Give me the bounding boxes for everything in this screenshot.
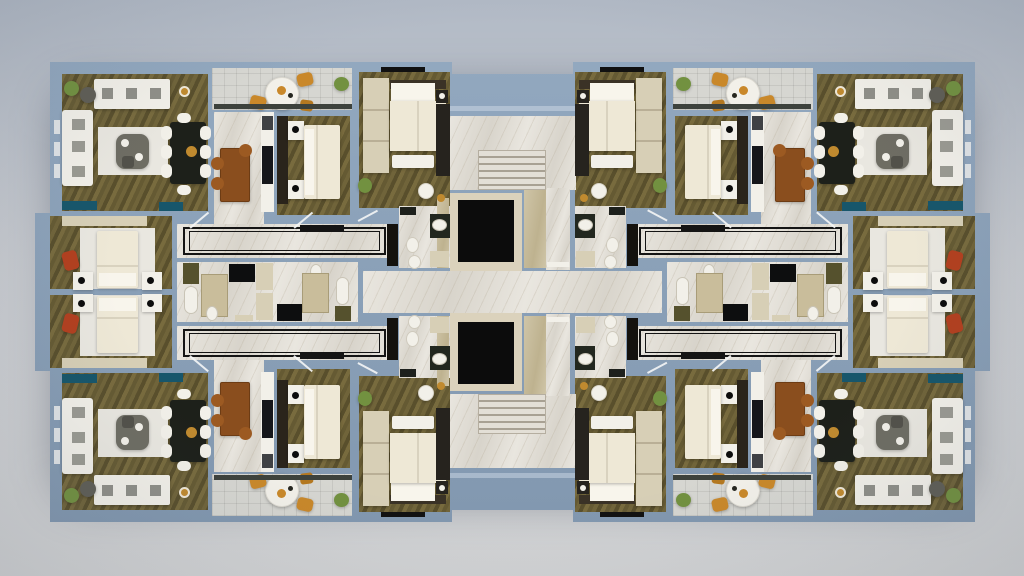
bed-fold xyxy=(707,385,709,459)
hall-wardrobe xyxy=(387,224,398,266)
toilet xyxy=(606,237,619,253)
nightstand-dot xyxy=(580,485,586,491)
window-dash xyxy=(965,120,971,134)
toilet xyxy=(206,306,218,321)
table-item xyxy=(288,93,293,98)
planter xyxy=(62,374,97,383)
nightstand-dot xyxy=(726,126,733,133)
column-item xyxy=(752,454,763,468)
wardrobe-seam xyxy=(363,473,389,475)
closet xyxy=(256,293,273,320)
table-item xyxy=(739,86,748,95)
bed-fold xyxy=(887,265,928,267)
tv-wall xyxy=(277,116,288,204)
dining-centerpiece xyxy=(186,146,197,157)
window-bench xyxy=(878,216,963,226)
kitchen-sink xyxy=(888,88,899,99)
cooktop xyxy=(912,88,923,99)
wardrobe-seam xyxy=(363,109,389,111)
gold-item xyxy=(580,382,588,390)
dining-chair xyxy=(200,406,211,420)
toilet xyxy=(406,237,419,253)
toilet xyxy=(606,331,619,347)
vanity-item xyxy=(400,369,416,377)
breakfast-chair xyxy=(801,394,814,407)
bathtub xyxy=(676,277,689,305)
plant xyxy=(653,391,667,406)
bath-sink xyxy=(578,219,593,231)
plant xyxy=(358,391,372,406)
column-item xyxy=(262,116,273,130)
dining-chair xyxy=(834,185,848,195)
breakfast-chair xyxy=(801,414,814,427)
bath-mat xyxy=(696,273,723,313)
table-item xyxy=(288,486,293,491)
table-item xyxy=(739,489,748,498)
dining-chair xyxy=(177,461,191,471)
coffee-table xyxy=(122,416,134,428)
bed-pillow xyxy=(590,83,634,101)
nightstand-dot xyxy=(871,300,878,307)
wardrobe-seam xyxy=(636,442,662,444)
nightstand-dot xyxy=(439,485,445,491)
tv-wall xyxy=(277,380,288,468)
armchair-dot xyxy=(882,423,890,431)
hall-console xyxy=(300,352,344,359)
counter-item xyxy=(150,88,161,99)
balcony-door-track xyxy=(214,104,352,109)
bath-sink xyxy=(578,353,593,365)
sofa-cushion xyxy=(72,432,85,443)
lobby-door-mark xyxy=(547,317,569,322)
hall-console xyxy=(681,225,725,232)
vanity-item xyxy=(400,207,416,215)
kitchen-sink xyxy=(888,485,899,496)
dining-chair xyxy=(200,145,211,159)
window-lintel xyxy=(600,512,644,517)
breakfast-chair xyxy=(773,427,786,440)
armchair-dot xyxy=(896,139,904,147)
bed-pillow xyxy=(99,298,136,311)
bath-panel xyxy=(826,263,842,284)
dining-chair xyxy=(161,406,172,420)
dining-chair xyxy=(177,389,191,399)
coffee-table xyxy=(891,416,903,428)
bath-mat xyxy=(576,317,595,333)
counter-item xyxy=(864,485,875,496)
dining-chair xyxy=(200,444,211,458)
bath-mat xyxy=(576,251,595,267)
bed-fold xyxy=(606,101,608,151)
coffee-table xyxy=(122,156,134,168)
armchair-dot xyxy=(121,437,129,445)
dining-chair xyxy=(853,164,864,178)
dining-chair xyxy=(853,406,864,420)
closet xyxy=(752,263,769,290)
lobby-strip-b xyxy=(524,190,546,268)
gold-item xyxy=(580,194,588,202)
coffee-table xyxy=(891,156,903,168)
kitchen-sink xyxy=(126,485,137,496)
dining-chair xyxy=(834,113,848,123)
dining-chair xyxy=(814,444,825,458)
bed-fold xyxy=(417,433,419,483)
nightstand-dot xyxy=(439,93,445,99)
bed-fold xyxy=(606,433,608,483)
foot-bench xyxy=(392,416,434,429)
window-dash xyxy=(965,142,971,156)
bed-fold xyxy=(707,125,709,199)
wardrobe xyxy=(363,411,389,506)
tv-wall xyxy=(737,116,748,204)
dining-chair xyxy=(161,126,172,140)
lounge-chair xyxy=(929,481,945,497)
kitchen-sink xyxy=(126,88,137,99)
wardrobe-seam xyxy=(636,473,662,475)
window-dash xyxy=(54,428,60,442)
dining-chair xyxy=(161,444,172,458)
bed-fold xyxy=(97,265,138,267)
window-bench xyxy=(62,358,147,368)
wardrobe-seam xyxy=(636,109,662,111)
toilet xyxy=(406,331,419,347)
tv-wall xyxy=(436,408,450,480)
wardrobe xyxy=(636,411,662,506)
bed-pillow xyxy=(711,389,720,455)
oven xyxy=(752,146,763,184)
bed-pillow xyxy=(305,389,314,455)
sofa-cushion xyxy=(940,454,953,465)
bath-panel xyxy=(183,263,199,284)
bed-pillow xyxy=(889,273,926,286)
foot-bench xyxy=(392,155,434,168)
window-dash xyxy=(965,450,971,464)
breakfast-chair xyxy=(211,177,224,190)
elevator-shaft xyxy=(458,322,514,384)
tv-wall xyxy=(436,104,450,176)
bath-shelf xyxy=(772,315,790,321)
lounge-chair xyxy=(80,481,96,497)
window-dash xyxy=(54,450,60,464)
cooktop xyxy=(912,485,923,496)
sofa-cushion xyxy=(940,166,953,177)
bed-fold xyxy=(417,101,419,151)
nightstand-dot xyxy=(940,300,947,307)
core-wall-highlight xyxy=(441,473,584,478)
armchair-dot xyxy=(121,139,129,147)
dining-centerpiece xyxy=(828,146,839,157)
lobby-door-mark xyxy=(547,262,569,267)
bed-pillow xyxy=(889,298,926,311)
vanity-item xyxy=(609,207,625,215)
oven xyxy=(262,146,273,184)
dining-chair xyxy=(814,425,825,439)
armchair-dot xyxy=(135,423,143,431)
breakfast-chair xyxy=(211,394,224,407)
cooktop xyxy=(102,485,113,496)
nightstand-dot xyxy=(292,126,299,133)
hall-wardrobe xyxy=(627,224,638,266)
tv-wall xyxy=(575,408,589,480)
dining-chair xyxy=(853,126,864,140)
nightstand-dot xyxy=(726,392,733,399)
gold-item xyxy=(437,194,445,202)
ceiling-light xyxy=(835,86,846,97)
bed-fold xyxy=(97,317,138,319)
lounge-chair xyxy=(80,87,96,103)
nightstand-dot xyxy=(78,277,85,284)
balcony-plant xyxy=(334,493,349,507)
nightstand-dot xyxy=(78,300,85,307)
shower xyxy=(723,304,748,321)
sofa-cushion xyxy=(72,166,85,177)
bath-sink xyxy=(432,353,447,365)
wardrobe-seam xyxy=(363,442,389,444)
bed-pillow xyxy=(711,129,720,195)
dining-chair xyxy=(853,425,864,439)
bed-pillow xyxy=(99,273,136,286)
window-bench xyxy=(62,216,147,226)
hall-wardrobe xyxy=(627,318,638,360)
plant-living xyxy=(64,488,79,503)
nightstand-dot xyxy=(580,93,586,99)
dining-chair xyxy=(853,444,864,458)
table-item xyxy=(277,86,286,95)
bath-sink xyxy=(432,219,447,231)
shower xyxy=(229,264,255,282)
hall-runner-border-inner xyxy=(645,231,836,251)
planter xyxy=(842,373,866,382)
balcony-door-track xyxy=(673,104,811,109)
nightstand-dot xyxy=(292,185,299,192)
sofa-cushion xyxy=(72,119,85,130)
window-dash xyxy=(965,406,971,420)
shower xyxy=(770,264,796,282)
planter xyxy=(928,201,963,210)
bath-mat xyxy=(430,251,449,267)
armchair-dot xyxy=(882,153,890,161)
dining-centerpiece xyxy=(828,427,839,438)
wardrobe xyxy=(636,78,662,173)
plant-living xyxy=(946,488,961,503)
table-item xyxy=(732,93,737,98)
bath-panel xyxy=(674,306,690,321)
hall-runner-border-inner xyxy=(645,333,836,353)
lobby-strip-b xyxy=(524,316,546,394)
bath-mat xyxy=(302,273,329,313)
table-item xyxy=(277,489,286,498)
lobby-strip-c xyxy=(546,314,570,396)
ceiling-light xyxy=(179,487,190,498)
armchair-dot xyxy=(135,153,143,161)
plant-living xyxy=(64,81,79,96)
bidet xyxy=(604,255,617,269)
dining-chair xyxy=(814,126,825,140)
balcony-plant xyxy=(676,493,691,507)
shower xyxy=(277,304,302,321)
bed-fold xyxy=(316,385,318,459)
sofa-cushion xyxy=(940,141,953,152)
table-item xyxy=(732,486,737,491)
breakfast-chair xyxy=(211,414,224,427)
bed-pillow xyxy=(391,83,435,101)
tv-wall xyxy=(737,380,748,468)
sofa-cushion xyxy=(72,454,85,465)
pouf xyxy=(591,183,607,199)
hall-wardrobe xyxy=(387,318,398,360)
nightstand-dot xyxy=(940,277,947,284)
window-dash xyxy=(54,406,60,420)
nightstand-dot xyxy=(147,277,154,284)
wardrobe-seam xyxy=(636,140,662,142)
bidet xyxy=(408,255,421,269)
bath-panel xyxy=(335,306,351,321)
lounge-chair xyxy=(929,87,945,103)
foot-bench xyxy=(591,155,633,168)
sofa-cushion xyxy=(940,119,953,130)
pouf xyxy=(418,385,434,401)
bidet xyxy=(408,315,421,329)
window-bench xyxy=(878,358,963,368)
planter xyxy=(928,374,963,383)
dining-chair xyxy=(200,164,211,178)
bathtub xyxy=(184,286,198,314)
hall-console xyxy=(681,352,725,359)
column-item xyxy=(752,116,763,130)
bed-fold xyxy=(887,317,928,319)
counter-item xyxy=(864,88,875,99)
plant-living xyxy=(946,81,961,96)
bed-pillow xyxy=(305,129,314,195)
vanity-item xyxy=(609,369,625,377)
bath-mat xyxy=(430,317,449,333)
foot-bench xyxy=(591,416,633,429)
window-dash xyxy=(54,164,60,178)
dining-chair xyxy=(177,113,191,123)
dining-chair xyxy=(853,145,864,159)
bidet xyxy=(604,315,617,329)
main-corridor-floor xyxy=(363,271,662,313)
oven xyxy=(262,400,273,438)
window-dash xyxy=(54,120,60,134)
dining-chair xyxy=(834,389,848,399)
hall-runner-border-inner xyxy=(189,231,380,251)
nightstand-dot xyxy=(292,451,299,458)
armchair-dot xyxy=(896,437,904,445)
window-dash xyxy=(54,142,60,156)
planter xyxy=(842,202,866,211)
core-wall-highlight xyxy=(441,106,584,111)
stair-steps xyxy=(478,150,546,190)
wardrobe xyxy=(363,78,389,173)
breakfast-chair xyxy=(801,177,814,190)
bath-shelf xyxy=(235,315,253,321)
dining-chair xyxy=(200,126,211,140)
window-dash xyxy=(965,164,971,178)
dining-chair xyxy=(161,145,172,159)
planter xyxy=(159,373,183,382)
balcony-plant xyxy=(334,77,349,91)
ceiling-light xyxy=(179,86,190,97)
window-lintel xyxy=(381,512,425,517)
dining-chair xyxy=(200,425,211,439)
bathtub xyxy=(336,277,349,305)
breakfast-chair xyxy=(211,157,224,170)
dining-chair xyxy=(177,185,191,195)
nightstand-dot xyxy=(726,451,733,458)
planter xyxy=(62,201,97,210)
dining-chair xyxy=(161,164,172,178)
bed-pillow xyxy=(391,483,435,501)
balcony-door-track xyxy=(673,475,811,480)
pouf xyxy=(418,183,434,199)
pouf xyxy=(591,385,607,401)
dining-chair xyxy=(814,164,825,178)
nightstand-dot xyxy=(726,185,733,192)
sofa-cushion xyxy=(940,407,953,418)
sofa-cushion xyxy=(72,141,85,152)
window-lintel xyxy=(600,67,644,72)
hall-console xyxy=(300,225,344,232)
counter-item xyxy=(150,485,161,496)
toilet xyxy=(807,306,819,321)
nightstand-dot xyxy=(871,277,878,284)
lobby-strip-c xyxy=(546,188,570,270)
dining-chair xyxy=(814,145,825,159)
breakfast-chair xyxy=(773,144,786,157)
cooktop xyxy=(102,88,113,99)
balcony-plant xyxy=(676,77,691,91)
elevator-shaft xyxy=(458,200,514,262)
window-dash xyxy=(965,428,971,442)
floor-plan-stage xyxy=(0,0,1024,576)
nightstand-dot xyxy=(147,300,154,307)
planter xyxy=(159,202,183,211)
sofa-cushion xyxy=(72,407,85,418)
stair-steps xyxy=(478,394,546,434)
ceiling-light xyxy=(835,487,846,498)
dining-chair xyxy=(161,425,172,439)
window-lintel xyxy=(381,67,425,72)
sofa-cushion xyxy=(940,432,953,443)
plant xyxy=(653,178,667,193)
dining-chair xyxy=(834,461,848,471)
dining-centerpiece xyxy=(186,427,197,438)
plant xyxy=(358,178,372,193)
bathtub xyxy=(827,286,841,314)
breakfast-chair xyxy=(239,427,252,440)
balcony-door-track xyxy=(214,475,352,480)
closet xyxy=(752,293,769,320)
bed-fold xyxy=(316,125,318,199)
bed-pillow xyxy=(590,483,634,501)
breakfast-chair xyxy=(801,157,814,170)
closet xyxy=(256,263,273,290)
tv-wall xyxy=(575,104,589,176)
oven xyxy=(752,400,763,438)
breakfast-chair xyxy=(239,144,252,157)
gold-item xyxy=(437,382,445,390)
hall-runner-border-inner xyxy=(189,333,380,353)
wardrobe-seam xyxy=(363,140,389,142)
column-item xyxy=(262,454,273,468)
nightstand-dot xyxy=(292,392,299,399)
dining-chair xyxy=(814,406,825,420)
